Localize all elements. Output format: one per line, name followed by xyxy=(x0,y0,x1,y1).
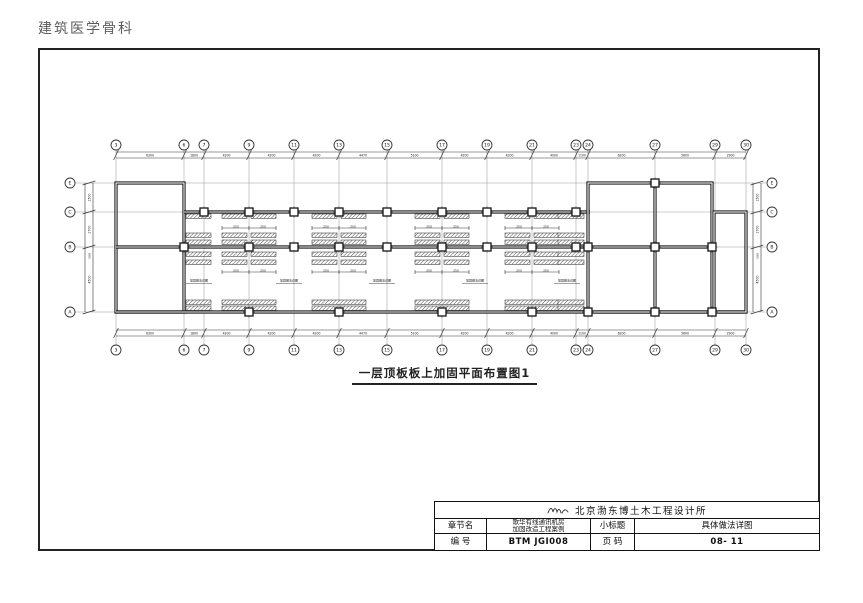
grid-bubble-label: 3 xyxy=(115,143,118,149)
dimension-label: 4200 xyxy=(313,332,321,336)
hatch-strip xyxy=(558,252,584,256)
grid-bubble-label: 9 xyxy=(248,348,251,354)
strip-dimension-label: 250 xyxy=(350,224,356,228)
dimension-label: 4500 xyxy=(88,276,92,284)
grid-bubble-label: 27 xyxy=(652,143,658,149)
hatch-strip xyxy=(186,252,211,256)
dimension-label: 4200 xyxy=(461,154,469,158)
drawing-number: BTM JGI008 xyxy=(487,534,591,550)
hatch-strip xyxy=(186,306,211,310)
hatch-strip xyxy=(534,252,559,256)
hatch-strip xyxy=(222,240,247,244)
hatch-strip xyxy=(222,300,276,304)
number-label: 编 号 xyxy=(435,534,487,550)
hatch-strip xyxy=(534,233,559,237)
hatch-strip xyxy=(222,252,247,256)
hatch-strip xyxy=(341,214,366,218)
subtitle-value: 具体做法详图 xyxy=(635,519,819,534)
grid-bubble-label: 29 xyxy=(712,348,718,354)
dimension-label: 4200 xyxy=(313,154,321,158)
strip-dimension-label: 250 xyxy=(453,268,459,272)
column-marker xyxy=(335,243,343,251)
dimension-label: 6200 xyxy=(618,154,626,158)
grid-bubble-label: 19 xyxy=(484,143,490,149)
company-row: 北京渤东博土木工程设计所 xyxy=(435,502,819,519)
chapter-label: 章节名 xyxy=(435,519,487,534)
hatch-strip xyxy=(341,233,366,237)
strip-dimension-label: 250 xyxy=(233,268,239,272)
strip-dimension-label: 250 xyxy=(543,224,549,228)
hatch-strip xyxy=(186,260,211,264)
dimension-label: 4470 xyxy=(359,332,367,336)
dimension-label: 4200 xyxy=(506,332,514,336)
column-marker xyxy=(438,308,446,316)
hatch-strip xyxy=(415,214,440,218)
column-marker xyxy=(245,308,253,316)
grid-bubble-label: 9 xyxy=(248,143,251,149)
column-marker xyxy=(651,179,659,187)
dimension-label: 1500 xyxy=(756,194,760,202)
strip-dimension-label: 250 xyxy=(260,268,266,272)
column-marker xyxy=(584,308,592,316)
hatch-strip xyxy=(251,233,276,237)
grid-bubble-label: B xyxy=(770,245,773,251)
column-marker xyxy=(438,208,446,216)
column-marker xyxy=(200,208,208,216)
grid-bubble-label: 13 xyxy=(336,143,342,149)
strip-dimension-label: 250 xyxy=(516,268,522,272)
design-institute-logo-icon xyxy=(547,505,569,516)
hatch-strip xyxy=(251,260,276,264)
hatch-strip xyxy=(341,252,366,256)
grid-bubble-label: 6 xyxy=(183,143,186,149)
dimension-label: 1800 xyxy=(190,154,198,158)
hatch-strip xyxy=(558,260,584,264)
dimension-label: 5600 xyxy=(681,154,689,158)
column-marker xyxy=(572,208,580,216)
hatch-strip xyxy=(415,260,440,264)
column-marker xyxy=(290,208,298,216)
hatch-strip xyxy=(534,214,559,218)
column-marker xyxy=(335,308,343,316)
hatch-strip xyxy=(341,260,366,264)
plan-annotation: 加固做法详图 xyxy=(190,278,208,283)
column-marker xyxy=(483,208,491,216)
strip-dimension-label: 250 xyxy=(543,268,549,272)
hatch-strip xyxy=(312,300,366,304)
grid-bubble-label: 21 xyxy=(529,143,535,149)
strip-dimension-label: 250 xyxy=(516,224,522,228)
dimension-label: 6300 xyxy=(146,154,154,158)
column-marker xyxy=(180,243,188,251)
column-marker xyxy=(245,243,253,251)
hatch-strip xyxy=(186,233,211,237)
strip-dimension-label: 250 xyxy=(260,224,266,228)
plan-caption: 一层顶板板上加固平面布置图1 xyxy=(352,365,537,385)
hatch-strip xyxy=(415,300,469,304)
plan-annotation: 加固做法详图 xyxy=(558,278,576,283)
column-marker xyxy=(651,243,659,251)
grid-bubble-label: 29 xyxy=(712,143,718,149)
hatch-strip xyxy=(558,306,584,310)
hatch-strip xyxy=(312,252,337,256)
grid-bubble-label: 21 xyxy=(529,348,535,354)
hatch-strip xyxy=(312,260,337,264)
hatch-strip xyxy=(251,252,276,256)
grid-bubble-label: C xyxy=(770,210,773,216)
hatch-strip xyxy=(558,300,584,304)
hatch-strip xyxy=(505,300,559,304)
grid-bubble-label: 24 xyxy=(585,348,591,354)
grid-bubble-label: 17 xyxy=(439,348,445,354)
dimension-label: 500 xyxy=(756,253,760,259)
hatch-strip xyxy=(415,240,440,244)
hatch-strip xyxy=(186,300,211,304)
dimension-label: 1100 xyxy=(578,154,586,158)
page-number: 08- 11 xyxy=(635,534,819,550)
column-marker xyxy=(245,208,253,216)
dimension-label: 4200 xyxy=(268,332,276,336)
hatch-strip xyxy=(505,260,530,264)
hatch-strip xyxy=(505,240,530,244)
dimension-label: 5100 xyxy=(411,154,419,158)
hatch-strip xyxy=(222,260,247,264)
hatch-strip xyxy=(444,233,469,237)
dimension-label: 1800 xyxy=(190,332,198,336)
hatch-strip xyxy=(222,214,247,218)
dimension-label: 4000 xyxy=(550,154,558,158)
column-marker xyxy=(572,243,580,251)
hatch-strip xyxy=(312,233,337,237)
dimension-label: 4470 xyxy=(359,154,367,158)
strip-dimension-label: 250 xyxy=(323,268,329,272)
plan-annotation: 加固做法详图 xyxy=(466,278,484,283)
plan-annotation: 加固做法详图 xyxy=(373,278,391,283)
strip-dimension-label: 250 xyxy=(233,224,239,228)
grid-bubble-label: E xyxy=(771,181,774,187)
dimension-label: 5100 xyxy=(411,332,419,336)
hatch-strip xyxy=(312,240,337,244)
hatch-strip xyxy=(534,260,559,264)
strip-dimension-label: 250 xyxy=(350,268,356,272)
grid-bubble-label: 7 xyxy=(203,348,206,354)
hatch-strip xyxy=(251,214,276,218)
strip-dimension-label: 250 xyxy=(426,268,432,272)
dimension-label: 6200 xyxy=(618,332,626,336)
hatch-strip xyxy=(505,214,530,218)
grid-bubble-label: 23 xyxy=(573,143,579,149)
grid-bubble-label: 17 xyxy=(439,143,445,149)
grid-bubble-label: E xyxy=(69,181,72,187)
grid-bubble-label: C xyxy=(68,210,71,216)
grid-bubble-label: 11 xyxy=(291,348,297,354)
hatch-strip xyxy=(558,233,584,237)
grid-bubble-label: 6 xyxy=(183,348,186,354)
column-marker xyxy=(335,208,343,216)
dimension-label: 4500 xyxy=(756,276,760,284)
column-marker xyxy=(651,308,659,316)
wall xyxy=(714,212,746,312)
hatch-strip xyxy=(444,214,469,218)
dimension-label: 5600 xyxy=(681,332,689,336)
strip-dimension-label: 250 xyxy=(453,224,459,228)
dimension-label: 1500 xyxy=(88,194,92,202)
grid-bubble-label: 3 xyxy=(115,348,118,354)
strip-dimension-label: 250 xyxy=(426,224,432,228)
dimension-label: 2900 xyxy=(727,154,735,158)
column-marker xyxy=(383,208,391,216)
column-marker xyxy=(483,243,491,251)
hatch-strip xyxy=(534,240,559,244)
project-name: 歌华有线通讯机房 加固改造工程案例 xyxy=(487,519,591,534)
grid-bubble-label: 30 xyxy=(743,143,749,149)
hatch-strip xyxy=(186,240,211,244)
column-marker xyxy=(528,308,536,316)
drawing-sheet-page: 建筑医学骨科 630018004200420042004470510042004… xyxy=(0,0,863,603)
dimension-label: 4200 xyxy=(223,154,231,158)
wall-core xyxy=(714,212,746,312)
company-name: 北京渤东博土木工程设计所 xyxy=(575,503,707,517)
hatch-strip xyxy=(341,240,366,244)
dimension-label: 4200 xyxy=(461,332,469,336)
grid-bubble-label: 15 xyxy=(384,143,390,149)
dimension-label: 1100 xyxy=(578,332,586,336)
grid-bubble-label: 15 xyxy=(384,348,390,354)
dimension-label: 2700 xyxy=(88,226,92,234)
dimension-label: 4000 xyxy=(550,332,558,336)
grid-bubble-label: 30 xyxy=(743,348,749,354)
grid-bubble-label: 7 xyxy=(203,143,206,149)
plan-annotation: 加固做法详图 xyxy=(280,278,298,283)
column-marker xyxy=(438,243,446,251)
column-marker xyxy=(383,243,391,251)
subtitle-label: 小标题 xyxy=(591,519,635,534)
dimension-label: 4200 xyxy=(268,154,276,158)
page-label: 页 码 xyxy=(591,534,635,550)
grid-bubble-label: 24 xyxy=(585,143,591,149)
grid-bubble-label: 13 xyxy=(336,348,342,354)
hatch-strip xyxy=(444,252,469,256)
column-marker xyxy=(708,243,716,251)
dimension-label: 4200 xyxy=(223,332,231,336)
grid-bubble-label: 23 xyxy=(573,348,579,354)
dimension-label: 4200 xyxy=(506,154,514,158)
dimension-label: 2700 xyxy=(756,226,760,234)
column-marker xyxy=(290,243,298,251)
column-marker xyxy=(528,208,536,216)
hatch-strip xyxy=(444,240,469,244)
grid-bubble-label: 11 xyxy=(291,143,297,149)
hatch-strip xyxy=(222,233,247,237)
hatch-strip xyxy=(444,260,469,264)
grid-bubble-label: B xyxy=(68,245,71,251)
hatch-strip xyxy=(505,233,530,237)
hatch-strip xyxy=(415,233,440,237)
dimension-label: 500 xyxy=(88,253,92,259)
hatch-strip xyxy=(415,252,440,256)
hatch-strip xyxy=(312,214,337,218)
hatch-strip xyxy=(251,240,276,244)
dimension-label: 2900 xyxy=(727,332,735,336)
column-marker xyxy=(708,308,716,316)
dimension-label: 6300 xyxy=(146,332,154,336)
grid-bubble-label: 19 xyxy=(484,348,490,354)
column-marker xyxy=(584,243,592,251)
column-marker xyxy=(528,243,536,251)
grid-bubble-label: 27 xyxy=(652,348,658,354)
hatch-strip xyxy=(505,252,530,256)
title-block: 北京渤东博土木工程设计所 章节名 歌华有线通讯机房 加固改造工程案例 小标题 具… xyxy=(434,501,820,551)
strip-dimension-label: 250 xyxy=(323,224,329,228)
